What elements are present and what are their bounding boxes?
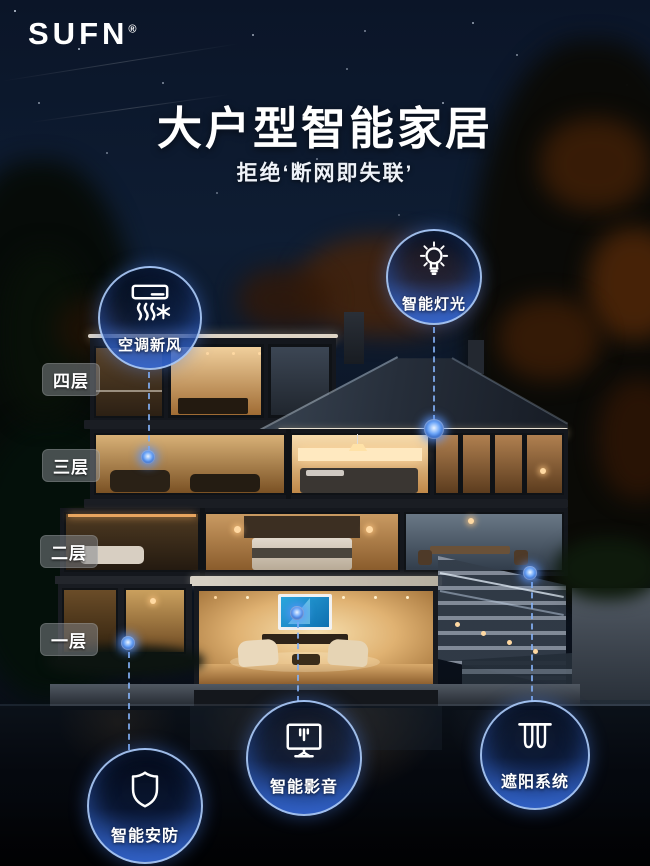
connector-lighting [433,327,435,421]
lantern-light [540,468,546,474]
floor-slab [55,576,195,584]
third-floor-side-room [434,433,564,495]
step-lights [455,622,460,627]
connector-hvac [148,372,150,452]
feature-label: 智能灯光 [402,293,466,314]
page-title: 大户型智能家居 [0,92,650,157]
autumn-foliage [238,268,330,330]
device-dot-security [121,636,135,650]
brand-name: SUFN [28,16,128,51]
dining-chair [514,550,528,565]
headboard [244,516,360,538]
shrubs [556,538,650,600]
bed-runner [252,548,352,558]
wall-divider [286,429,291,499]
autumn-foliage [498,298,600,380]
glass-box-roof-slab [190,576,442,586]
sofa [110,470,170,492]
bedside-lamp [366,526,373,533]
retaining-wall [572,588,650,700]
brand-logo: SUFN® [28,16,137,52]
feature-badge-lighting: 智能灯光 [386,229,482,325]
connector-av [297,622,299,702]
feature-badge-security: 智能安防 [87,748,203,864]
connector-security [128,652,130,750]
poster-scene: 四层 三层 二层 一层 空调新风 [0,0,650,866]
armchair [237,639,279,668]
light-bulb-icon [413,241,455,288]
dining-chair [418,550,432,565]
floor-slab [84,499,568,508]
star-field [14,10,16,12]
armchair [327,639,369,668]
floor-tag-label: 三层 [53,458,89,477]
wall-divider [200,508,205,576]
feature-label: 遮阳系统 [501,768,569,792]
window-mullion [458,433,463,495]
balcony-railing [96,390,162,392]
floor-tag-4: 四层 [42,363,100,396]
sofa [190,474,260,492]
floor-lamp [150,598,156,604]
feature-badge-av: 智能影音 [246,700,362,816]
window-mullion [490,433,495,495]
device-dot-shading [523,566,537,580]
floor-tag-label: 二层 [51,544,87,563]
device-dot-hvac [141,450,155,464]
floor-tag-3: 三层 [42,449,100,482]
feature-badge-shading: 遮阳系统 [480,700,590,810]
curtain-icon [513,718,557,763]
feature-label: 智能影音 [270,773,338,797]
feature-label: 智能安防 [111,822,179,846]
pendant-light [468,518,474,524]
feature-label: 空调新风 [118,334,182,355]
feature-badge-hvac: 空调新风 [98,266,202,370]
bedroom-furniture [178,398,248,414]
floor-tag-2: 二层 [40,535,98,568]
connector-shading [531,582,533,702]
air-conditioner-fresh-air-icon [127,282,173,329]
dining-table [430,546,510,554]
bedside-lamp [234,526,241,533]
chimney [344,312,364,364]
terrace-strip-light [68,514,196,517]
device-dot-lighting [424,419,444,439]
shield-icon [122,766,168,817]
floor-tag-1: 一层 [40,623,98,656]
tv-media-icon [281,719,327,768]
window-mullion [522,433,527,495]
pendant-lamp-cord [357,434,358,444]
floor-tag-label: 一层 [51,632,87,651]
ceiling-downlights [214,596,217,599]
device-dot-av [290,606,304,620]
registered-mark: ® [128,24,136,36]
pillows [306,470,344,476]
page-subtitle: 拒绝‘断网即失联’ [0,157,650,187]
floor-tag-label: 四层 [53,372,89,391]
